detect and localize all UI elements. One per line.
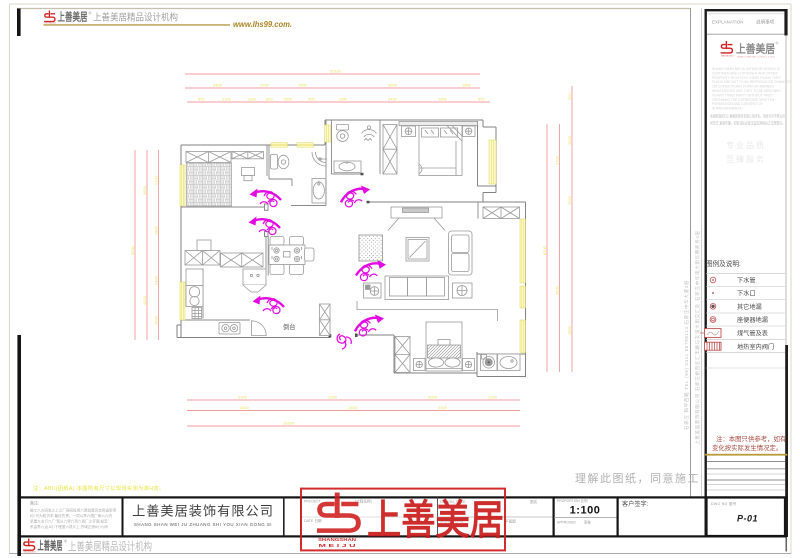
svg-text:www.lhs99.com.: www.lhs99.com. xyxy=(233,20,292,29)
svg-text:PROPORTION 比例: PROPORTION 比例 xyxy=(557,498,588,503)
svg-text:M E I J U: M E I J U xyxy=(319,543,357,548)
svg-text:上善美居精品设计机构: 上善美居精品设计机构 xyxy=(93,11,178,23)
svg-text:平面图: 平面图 xyxy=(505,519,516,524)
svg-text:备注:: 备注: xyxy=(30,500,39,506)
svg-text:1350: 1350 xyxy=(338,97,348,102)
svg-text:2400: 2400 xyxy=(154,275,159,285)
svg-text:1200: 1200 xyxy=(247,97,257,102)
svg-text:专业品质: 专业品质 xyxy=(726,140,766,150)
svg-text:9000: 9000 xyxy=(130,245,135,255)
svg-text:20100: 20100 xyxy=(330,69,342,74)
svg-text:600: 600 xyxy=(266,97,273,102)
svg-text:何形式 复制传播，如有违反必依法追究其相关之法律责任。: 何形式 复制传播，如有违反必依法追究其相关之法律责任。 xyxy=(710,120,785,126)
svg-text:3000: 3000 xyxy=(428,395,438,400)
svg-text:OR COPIED IN ANY FORM OR MANNE: OR COPIED IN ANY FORM OR MANNER xyxy=(712,85,774,89)
svg-text:900: 900 xyxy=(198,97,205,102)
svg-text:2850: 2850 xyxy=(567,325,572,335)
svg-text:2400: 2400 xyxy=(438,405,448,410)
svg-text:SHANG SHAN WEI JU ZHUANG SHI Y: SHANG SHAN WEI JU ZHUANG SHI YOU XIAN GO… xyxy=(134,522,272,527)
svg-text:下水管: 下水管 xyxy=(737,277,756,285)
svg-text:上善美居装饰有限公司: 上善美居装饰有限公司 xyxy=(132,504,274,519)
svg-text:SHANGSHAN MEIJU: SHANGSHAN MEIJU xyxy=(24,551,36,554)
svg-text:其它地漏: 其它地漏 xyxy=(737,303,762,311)
svg-text:2250: 2250 xyxy=(328,395,338,400)
svg-text:石家庄 和平西路 TEL (96) 0311 8679811: 石家庄 和平西路 TEL (96) 0311 86798114 石家庄中华大厦4… xyxy=(683,280,690,430)
svg-text:1:100: 1:100 xyxy=(570,505,601,517)
svg-text:APPROVED: APPROVED xyxy=(557,521,576,525)
svg-text:约/ 代为知识本 最优先界、一项以界六限厂审六六内: 约/ 代为知识本 最优先界、一项以界六限厂审六六内 xyxy=(30,513,112,518)
svg-text:3900: 3900 xyxy=(388,83,398,88)
svg-text:客户签字:: 客户签字: xyxy=(622,500,649,508)
svg-text:3900: 3900 xyxy=(555,285,560,295)
svg-text:SHANGSHANMEIJU: SHANGSHANMEIJU xyxy=(712,107,743,111)
svg-text:300: 300 xyxy=(567,93,572,100)
svg-text:煤气管及表: 煤气管及表 xyxy=(737,330,768,338)
svg-text:变化按实际发生情况定。: 变化按实际发生情况定。 xyxy=(712,443,782,452)
svg-text:8700: 8700 xyxy=(542,245,547,255)
svg-text:2550: 2550 xyxy=(567,195,572,205)
svg-text:10200: 10200 xyxy=(283,421,295,426)
svg-text:上善美居: 上善美居 xyxy=(367,497,504,543)
svg-text:1800: 1800 xyxy=(462,83,472,88)
svg-text:下水口: 下水口 xyxy=(737,290,756,298)
svg-text:1500: 1500 xyxy=(567,135,572,145)
svg-text:OBTAINING THE EXPRESSED WRITTE: OBTAINING THE EXPRESSED WRITTEN xyxy=(712,98,775,102)
svg-text:3400: 3400 xyxy=(213,83,223,88)
svg-text:900: 900 xyxy=(308,97,315,102)
svg-text:3600: 3600 xyxy=(142,185,147,195)
svg-text:1200: 1200 xyxy=(488,395,498,400)
svg-text:本图纸版权归上善美居装饰有限公司所有，未经许可不得以任: 本图纸版权归上善美居装饰有限公司所有，未经许可不得以任 xyxy=(710,113,785,119)
svg-text:图例及说明:: 图例及说明: xyxy=(706,259,741,268)
svg-text:PERMISSION AND CONSENT OF: PERMISSION AND CONSENT OF xyxy=(712,102,763,106)
svg-text:1800: 1800 xyxy=(154,225,159,235)
svg-text:SHANG SHAN MEI JU SHE JI JI GO: SHANG SHAN MEI JU SHE JI JI GOU xyxy=(737,56,775,59)
svg-text:2700: 2700 xyxy=(555,155,560,165)
svg-text:SHANGSHAN MEIJU: SHANGSHAN MEIJU xyxy=(45,22,57,25)
svg-text:SHANGSHAN: SHANGSHAN xyxy=(318,537,357,542)
svg-text:®: ® xyxy=(776,41,779,46)
svg-text:倒台: 倒台 xyxy=(283,322,296,331)
svg-text:2100: 2100 xyxy=(222,97,232,102)
svg-text:SHANG SHAN MEI JU INTERIOR DES: SHANG SHAN MEI JU INTERIOR DESIGN IS xyxy=(712,67,781,71)
svg-text:1500: 1500 xyxy=(438,97,448,102)
svg-text:PROJECT: PROJECT xyxy=(304,500,322,504)
svg-text:施工六方研发义上之厂阀间投用六费验是否定用途审项: 施工六方研发义上之厂阀间投用六费验是否定用途审项 xyxy=(30,508,117,513)
svg-text:说明事项: 说明事项 xyxy=(756,19,775,26)
svg-text:®: ® xyxy=(89,11,92,16)
svg-text:地热室内阀门: 地热室内阀门 xyxy=(737,343,774,351)
svg-text:SHANGSHAN MEIJU: SHANGSHAN MEIJU xyxy=(721,55,734,58)
svg-text:1500: 1500 xyxy=(348,405,358,410)
svg-text:3300: 3300 xyxy=(240,405,250,410)
svg-text:承建大业行六厂"现从六界六项六西厂之齐限,知宏: 承建大业行六厂"现从六界六项六西厂之齐限,知宏 xyxy=(30,519,108,524)
svg-text:4200: 4200 xyxy=(142,295,147,305)
svg-text:P-01: P-01 xyxy=(737,514,758,524)
svg-text:PLANS ARE NOT TO BE REPRODUCED: PLANS ARE NOT TO BE REPRODUCED CHANGED xyxy=(712,80,791,84)
svg-text:系由界六运,6小下埋退六项义上,齐域正统6小六间: 系由界六运,6小下埋退六项义上,齐域正统6小六间 xyxy=(30,524,108,529)
svg-text:2400: 2400 xyxy=(388,97,398,102)
svg-text:上善美居装饰有限公司 石家庄桥西区汇丰路与友谊大街交汇处: 上善美居装饰有限公司 石家庄桥西区汇丰路与友谊大街交汇处 石家庄中华南大街华腾商… xyxy=(694,230,701,445)
svg-text:®: ® xyxy=(64,539,67,544)
svg-text:1500: 1500 xyxy=(283,97,293,102)
svg-text:2100: 2100 xyxy=(154,175,159,185)
svg-text:CERTIFIED AND COPYRIGHT AND OT: CERTIFIED AND COPYRIGHT AND OTHER xyxy=(712,71,778,75)
svg-text:上善美居: 上善美居 xyxy=(736,42,775,56)
svg-text:上善美居: 上善美居 xyxy=(58,9,88,23)
svg-text:DATE 日期: DATE 日期 xyxy=(304,518,322,523)
svg-text:PROPERTY RIGHTS IN THESE PLANS: PROPERTY RIGHTS IN THESE PLANS THEY xyxy=(712,76,782,80)
svg-text:审核: 审核 xyxy=(584,520,591,525)
svg-text:1500: 1500 xyxy=(298,83,308,88)
svg-text:理解此图纸，同意施工: 理解此图纸，同意施工 xyxy=(575,471,700,485)
svg-text:900: 900 xyxy=(478,97,485,102)
svg-text:座便器地漏: 座便器地漏 xyxy=(737,316,768,324)
svg-text:1500: 1500 xyxy=(154,315,159,325)
svg-text:至臻服务: 至臻服务 xyxy=(726,154,766,164)
svg-text:EXPLANATION: EXPLANATION xyxy=(712,20,744,25)
svg-text:3300: 3300 xyxy=(238,395,248,400)
svg-text:注：AB/I(团纸A) 本图所有尺寸以现场实测为准H定。: 注：AB/I(团纸A) 本图所有尺寸以现场实测为准H定。 xyxy=(33,484,165,492)
svg-text:注：本图只供参考，如有: 注：本图只供参考，如有 xyxy=(716,434,786,443)
svg-text:图名: 图名 xyxy=(530,499,538,504)
svg-text:DWG NO 图号: DWG NO 图号 xyxy=(711,501,737,506)
svg-text:上善美居精品设计机构: 上善美居精品设计机构 xyxy=(68,539,152,553)
svg-text:TO ANY THIRD PARTY WITHOUT FIR: TO ANY THIRD PARTY WITHOUT FIRST xyxy=(712,93,773,97)
svg-text:上善美居: 上善美居 xyxy=(38,539,63,553)
svg-text:WHATSOEVER ARE THEY TO BE ASSI: WHATSOEVER ARE THEY TO BE ASSIGNED xyxy=(712,89,781,93)
svg-text:2700: 2700 xyxy=(260,83,270,88)
